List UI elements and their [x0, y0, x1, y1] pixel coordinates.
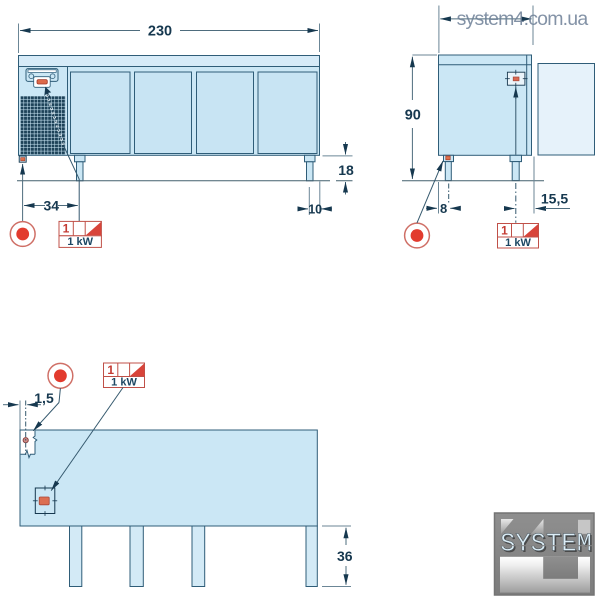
svg-text:36: 36: [337, 548, 353, 564]
svg-text:1: 1: [63, 222, 70, 236]
svg-text:10: 10: [308, 202, 322, 216]
svg-text:1 kW: 1 kW: [111, 377, 137, 389]
svg-text:SYSTEM: SYSTEM: [500, 530, 592, 559]
svg-text:15,5: 15,5: [541, 191, 568, 207]
svg-text:1: 1: [107, 363, 114, 377]
svg-text:8: 8: [440, 201, 447, 216]
svg-text:230: 230: [148, 24, 172, 40]
svg-text:1,5: 1,5: [34, 390, 54, 406]
svg-text:system4.com.ua: system4.com.ua: [457, 8, 589, 30]
svg-text:18: 18: [338, 162, 354, 178]
svg-text:34: 34: [44, 197, 60, 213]
svg-text:1: 1: [501, 223, 508, 237]
svg-text:90: 90: [405, 108, 421, 124]
svg-text:1 kW: 1 kW: [67, 236, 93, 248]
svg-text:1 kW: 1 kW: [505, 237, 531, 249]
